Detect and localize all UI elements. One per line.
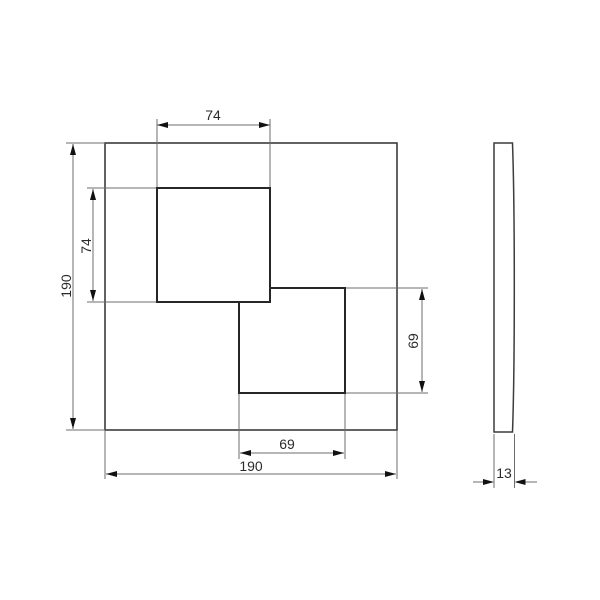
dim-label-left-overall-height: 190 (58, 274, 74, 298)
dim-side-depth: 13 (473, 434, 537, 488)
arrowhead-down-icon (419, 381, 425, 392)
arrowhead-left-icon (240, 450, 251, 456)
dim-left-inner-height: 74 (78, 188, 156, 302)
drawing-canvas: 74 190 74 69 69 (0, 0, 600, 600)
side-view (494, 143, 514, 432)
dim-right-inner-height: 69 (346, 288, 428, 393)
dim-label-bottom-overall-width: 190 (239, 458, 263, 474)
arrowhead-left-icon (157, 122, 168, 128)
dim-left-overall-height: 190 (58, 143, 105, 430)
arrowhead-right-icon (333, 450, 344, 456)
dim-label-top-width: 74 (205, 107, 221, 123)
arrowhead-right-icon (483, 479, 494, 485)
arrowhead-right-icon (259, 122, 270, 128)
arrowhead-right-icon (385, 471, 396, 477)
side-profile-outline (494, 143, 514, 432)
arrowhead-left-icon (515, 479, 526, 485)
arrowhead-up-icon (90, 189, 96, 200)
arrowhead-down-icon (90, 290, 96, 301)
dim-top-width: 74 (157, 107, 270, 187)
arrowhead-left-icon (106, 471, 117, 477)
upper-square (157, 188, 270, 302)
arrowhead-up-icon (70, 144, 76, 155)
dim-label-bottom-inner-width: 69 (279, 436, 295, 452)
arrowhead-down-icon (70, 418, 76, 429)
front-view (105, 143, 397, 430)
arrowhead-up-icon (419, 289, 425, 300)
lower-square (239, 288, 345, 393)
technical-drawing-svg: 74 190 74 69 69 (0, 0, 600, 600)
dim-bottom-inner-width: 69 (239, 394, 345, 459)
dim-label-left-inner-height: 74 (78, 238, 94, 254)
dim-label-right-inner-height: 69 (405, 333, 421, 349)
dim-label-side-depth: 13 (496, 465, 512, 481)
